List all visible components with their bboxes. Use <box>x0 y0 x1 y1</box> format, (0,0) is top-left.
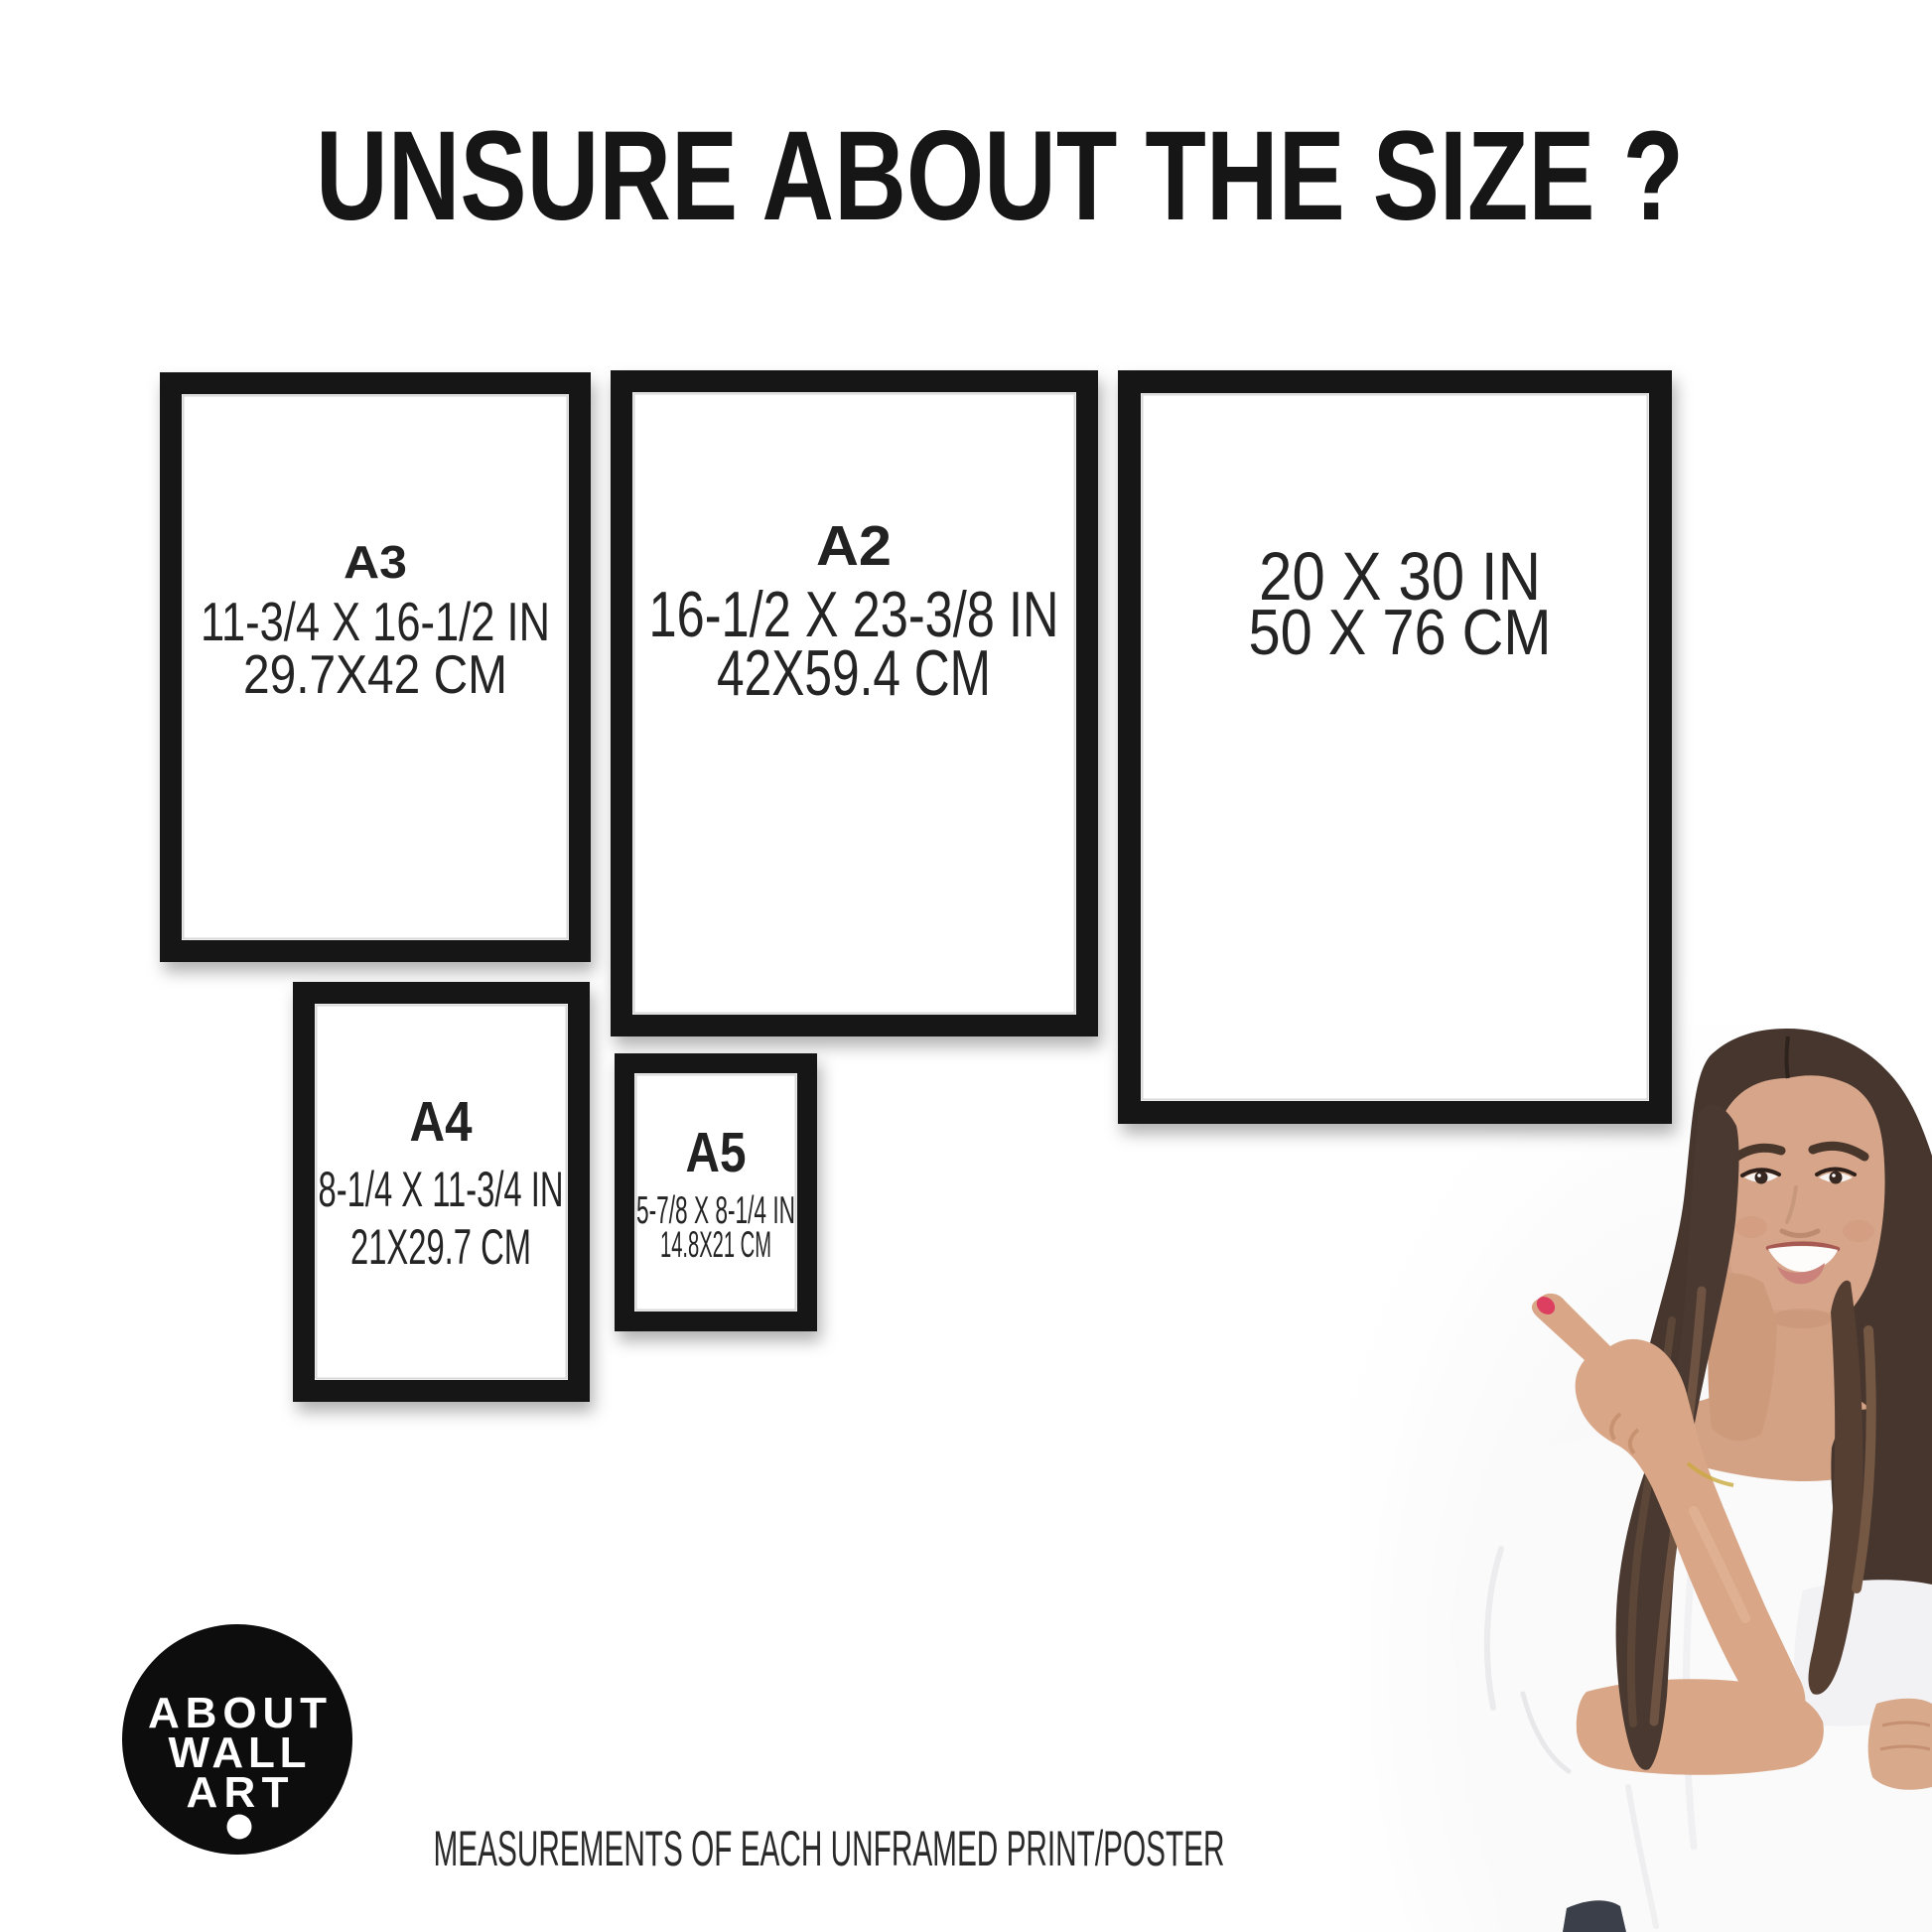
svg-text:A3: A3 <box>344 536 407 588</box>
svg-text:50 X 76 CM: 50 X 76 CM <box>1249 596 1552 668</box>
svg-text:42X59.4 CM: 42X59.4 CM <box>717 636 991 709</box>
svg-text:14.8X21 CM: 14.8X21 CM <box>660 1224 771 1265</box>
svg-text:A5: A5 <box>686 1121 747 1184</box>
svg-text:A2: A2 <box>816 514 892 578</box>
svg-text:MEASUREMENTS OF EACH UNFRAMED: MEASUREMENTS OF EACH UNFRAMED PRINT/POST… <box>434 1821 1225 1876</box>
svg-text:UNSURE ABOUT THE SIZE ?: UNSURE ABOUT THE SIZE ? <box>316 105 1684 247</box>
svg-text:A4: A4 <box>410 1090 473 1154</box>
svg-text:ART: ART <box>187 1768 289 1817</box>
svg-text:8-1/4 X 11-3/4 IN: 8-1/4 X 11-3/4 IN <box>319 1162 564 1217</box>
svg-text:29.7X42 CM: 29.7X42 CM <box>243 643 507 705</box>
svg-text:21X29.7 CM: 21X29.7 CM <box>350 1219 531 1275</box>
